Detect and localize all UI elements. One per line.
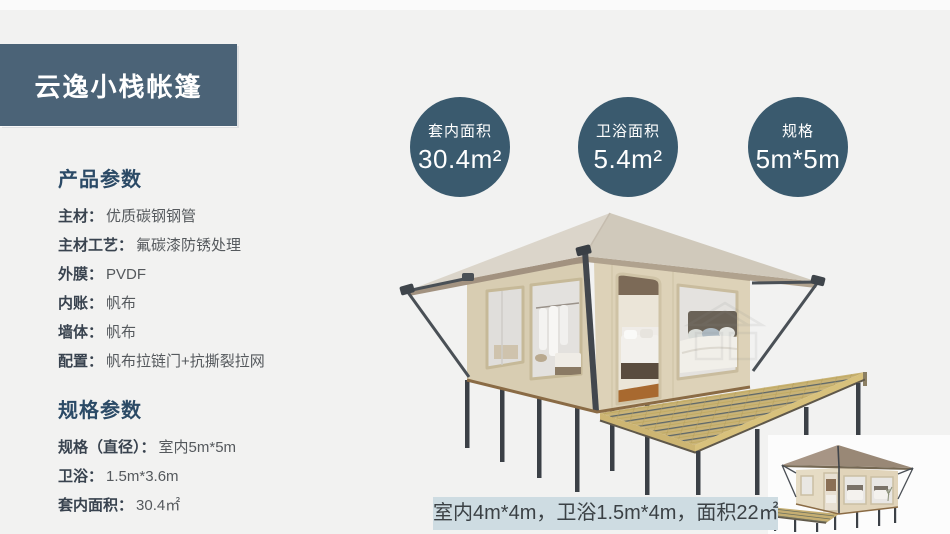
tent-door	[615, 273, 662, 408]
left-rod-clamp	[462, 273, 474, 281]
stat-circle-size: 规格 5m*5m	[748, 97, 848, 197]
right-guy-rods	[752, 282, 818, 371]
dimensions-caption: 室内4m*4m，卫浴1.5m*4m，面积22㎡	[433, 497, 778, 530]
parameters-panel: 产品参数 主材：优质碳钢钢管 主材工艺：氟碳漆防锈处理 外膜：PVDF 内账：帆…	[58, 163, 388, 520]
param-row-config: 配置：帆布拉链门+抗撕裂拉网	[58, 347, 388, 376]
param-row-material: 主材：优质碳钢钢管	[58, 202, 388, 231]
product-params-heading: 产品参数	[58, 163, 388, 192]
title-banner: 云逸小栈帐篷	[0, 44, 237, 126]
spec-row-size: 规格（直径）：室内5m*5m	[58, 433, 388, 462]
param-row-wall: 墙体：帆布	[58, 318, 388, 347]
stat-circle-bath-area: 卫浴面积 5.4m²	[578, 97, 678, 197]
thumbnail-tent-image	[768, 435, 950, 534]
spec-params-heading: 规格参数	[58, 394, 388, 423]
thumb-apex-pole	[838, 446, 839, 467]
thumb-front-window-1	[844, 476, 866, 504]
spec-row-bathroom: 卫浴：1.5m*3.6m	[58, 462, 388, 491]
side-window-2	[531, 279, 581, 379]
param-row-material-craft: 主材工艺：氟碳漆防锈处理	[58, 231, 388, 260]
page-title: 云逸小栈帐篷	[34, 67, 202, 104]
spec-row-inner-area: 套内面积：30.4㎡	[58, 491, 388, 520]
thumb-door	[824, 473, 838, 511]
param-row-outer-membrane: 外膜：PVDF	[58, 260, 388, 289]
top-strip	[0, 0, 950, 10]
param-row-inner-tent: 内账：帆布	[58, 289, 388, 318]
stat-circle-inner-area: 套内面积 30.4m²	[410, 97, 510, 197]
side-window-1	[487, 287, 523, 368]
thumb-side-window	[801, 476, 813, 495]
thumb-front-window-2	[871, 477, 893, 504]
